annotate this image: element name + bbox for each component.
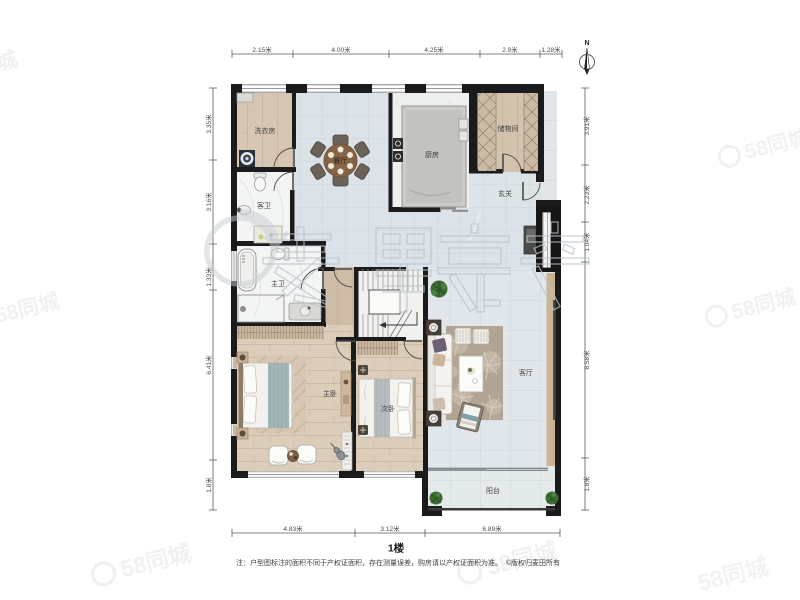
svg-text:次卧: 次卧 [381,404,395,413]
svg-text:阳台: 阳台 [486,486,500,495]
svg-text:3.16米: 3.16米 [204,192,213,212]
svg-text:储物间: 储物间 [498,124,519,133]
svg-text:1.28米: 1.28米 [541,45,561,54]
svg-text:2.9米: 2.9米 [502,45,518,54]
svg-text:厨房: 厨房 [425,150,439,159]
svg-text:注：户型图标注的面积不同于产权证面积，存在测量误差，购房请以: 注：户型图标注的面积不同于产权证面积，存在测量误差，购房请以产权证面积为准。 ©… [236,558,560,567]
svg-text:3.12米: 3.12米 [380,524,400,533]
svg-text:8.58米: 8.58米 [582,350,591,370]
svg-text:主卧: 主卧 [323,389,337,398]
svg-text:客卫: 客卫 [257,201,271,210]
svg-text:1楼: 1楼 [388,542,405,555]
svg-text:N: N [584,40,589,47]
svg-text:6.41米: 6.41米 [204,355,213,375]
svg-text:主卫: 主卫 [271,279,285,288]
svg-text:3.91米: 3.91米 [582,116,591,136]
svg-text:4.83米: 4.83米 [283,524,303,533]
svg-text:餐厅: 餐厅 [334,156,348,165]
svg-text:玄关: 玄关 [498,189,512,198]
svg-text:1.8米: 1.8米 [204,477,213,493]
svg-text:洗衣房: 洗衣房 [255,126,276,135]
svg-text:2.15米: 2.15米 [252,45,272,54]
svg-text:3.35米: 3.35米 [204,114,213,134]
svg-text:2.23米: 2.23米 [582,185,591,205]
svg-text:4.25米: 4.25米 [424,45,444,54]
svg-text:4.00米: 4.00米 [331,45,351,54]
svg-text:6.89米: 6.89米 [482,524,502,533]
svg-text:客厅: 客厅 [519,368,533,377]
svg-text:1.8米: 1.8米 [582,476,591,492]
